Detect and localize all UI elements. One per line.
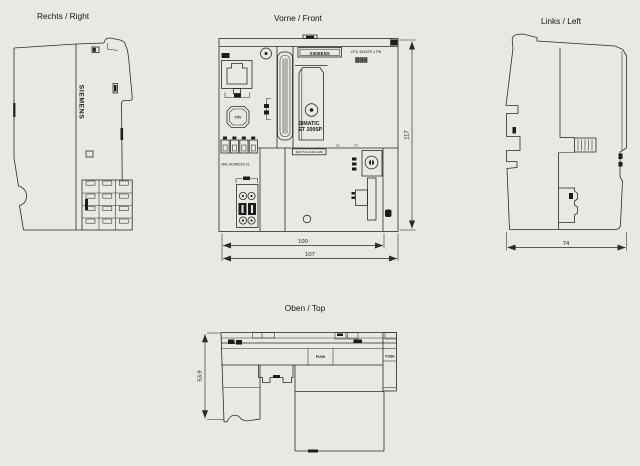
profinet-port <box>352 151 382 177</box>
siemens-brand-vertical: SIEMENS <box>78 85 85 120</box>
dim-top-depth-value: 53.9 <box>198 370 204 381</box>
memory-card-slot <box>278 52 293 140</box>
article-number-text: 6ES7 510-1DJ01-0AB0 <box>296 150 324 154</box>
housing-right-edge <box>122 57 133 180</box>
bus-adapter-section: TÜV MAC ADDRESS X1 <box>221 53 258 228</box>
dimension-depth-539: 53.9 <box>198 333 225 420</box>
terminal-block-grid <box>82 180 132 230</box>
vent-grille <box>575 138 597 152</box>
rj45-ethernet-port <box>222 61 253 98</box>
status-leds <box>356 58 368 63</box>
left-block-outline <box>224 365 260 422</box>
power-connector <box>236 177 258 228</box>
dimension-width-100: 100 <box>222 234 384 262</box>
dim-depth-value: 74 <box>563 241 570 247</box>
screw-top <box>261 48 272 59</box>
view-title-left: Links / Left <box>541 16 582 26</box>
dim-width-inner-value: 100 <box>298 239 308 245</box>
dimension-width-107: 107 <box>223 234 398 262</box>
dim-height-value: 117 <box>405 130 411 140</box>
mounting-hole <box>303 215 311 223</box>
siemens-plate-text: SIEMENS <box>310 51 330 56</box>
right-side-view: SIEMENS <box>13 38 132 230</box>
dim-width-outer-value: 107 <box>305 252 315 258</box>
left-side-view: 74 <box>506 34 627 251</box>
housing-left-edge <box>14 48 27 230</box>
left-housing-outline <box>506 34 627 230</box>
dimension-height: 117 <box>400 40 416 230</box>
top-left-edge <box>221 333 224 423</box>
side-connector-detail <box>559 188 578 223</box>
lower-block <box>356 190 368 206</box>
push-button-1: PUSH <box>316 355 326 359</box>
push-button-2: PUSH <box>385 355 395 359</box>
port-label-x1: X1 <box>336 144 340 148</box>
lower-bar <box>368 178 377 220</box>
drawing-svg: Rechts / Right Vorne / Front Links / Lef… <box>0 0 640 466</box>
terminal-row <box>221 137 257 154</box>
housing-top-edge <box>14 43 104 48</box>
dimension-depth-74: 74 <box>507 232 627 251</box>
view-title-front: Vorne / Front <box>274 13 323 23</box>
svg-text:TÜV: TÜV <box>235 116 243 120</box>
product-name-line2: ET 200SP <box>299 127 323 133</box>
view-title-right: Rechts / Right <box>37 11 90 21</box>
mac-address-label: MAC ADDRESS X1 <box>222 163 250 167</box>
view-title-top: Oben / Top <box>285 303 326 313</box>
cpu-type-label: CPU 1510SP-1 PN <box>351 50 382 54</box>
top-view: PUSH PUSH 53.9 <box>198 333 397 453</box>
base-unit-body <box>295 365 384 453</box>
bus-connector-symbol <box>264 99 271 120</box>
front-view: TÜV MAC ADDRESS X1 <box>219 35 416 261</box>
right-release-column: PUSH <box>383 333 397 392</box>
port-id-label <box>222 53 230 58</box>
dimensional-drawing-page: Rechts / Right Vorne / Front Links / Lef… <box>0 0 640 466</box>
cpu-section: SIEMENS CPU 1510SP-1 PN SIMATIC ET 200SP… <box>293 48 392 223</box>
tuv-logo: TÜV <box>227 107 249 128</box>
middle-block <box>259 365 294 383</box>
port-label-p1: P1 <box>355 144 359 148</box>
